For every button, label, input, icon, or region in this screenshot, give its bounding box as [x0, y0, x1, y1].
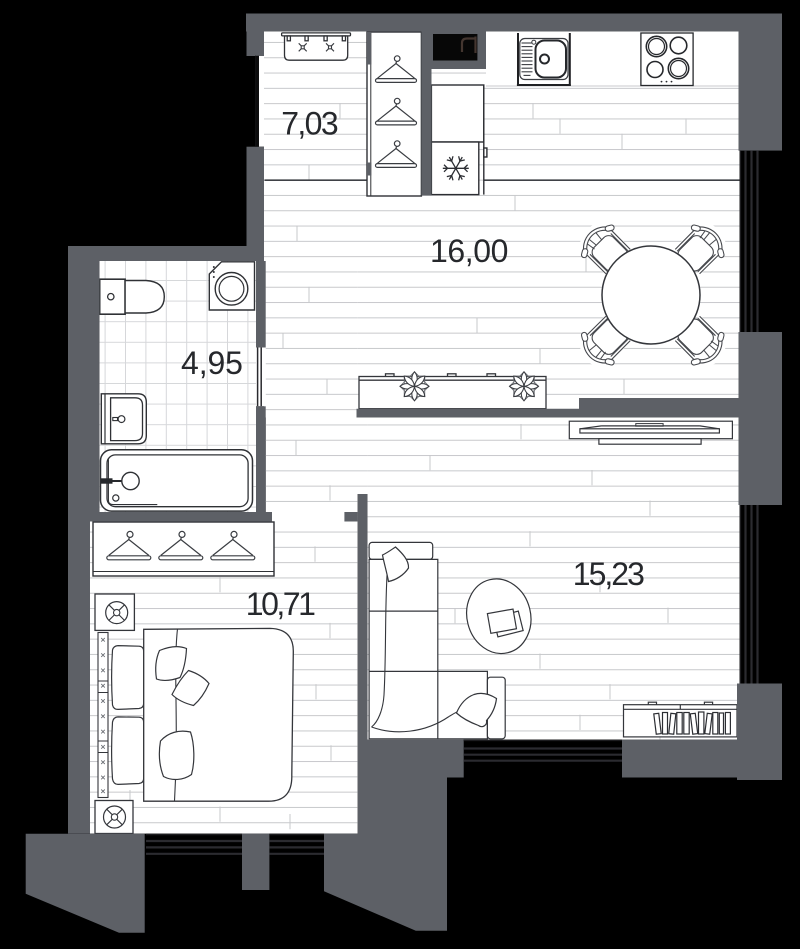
svg-text:4,95: 4,95 — [181, 345, 243, 381]
svg-text:16,00: 16,00 — [430, 233, 508, 269]
svg-text:7,03: 7,03 — [281, 105, 338, 141]
svg-text:15,23: 15,23 — [573, 556, 644, 592]
svg-text:10,71: 10,71 — [246, 586, 315, 622]
